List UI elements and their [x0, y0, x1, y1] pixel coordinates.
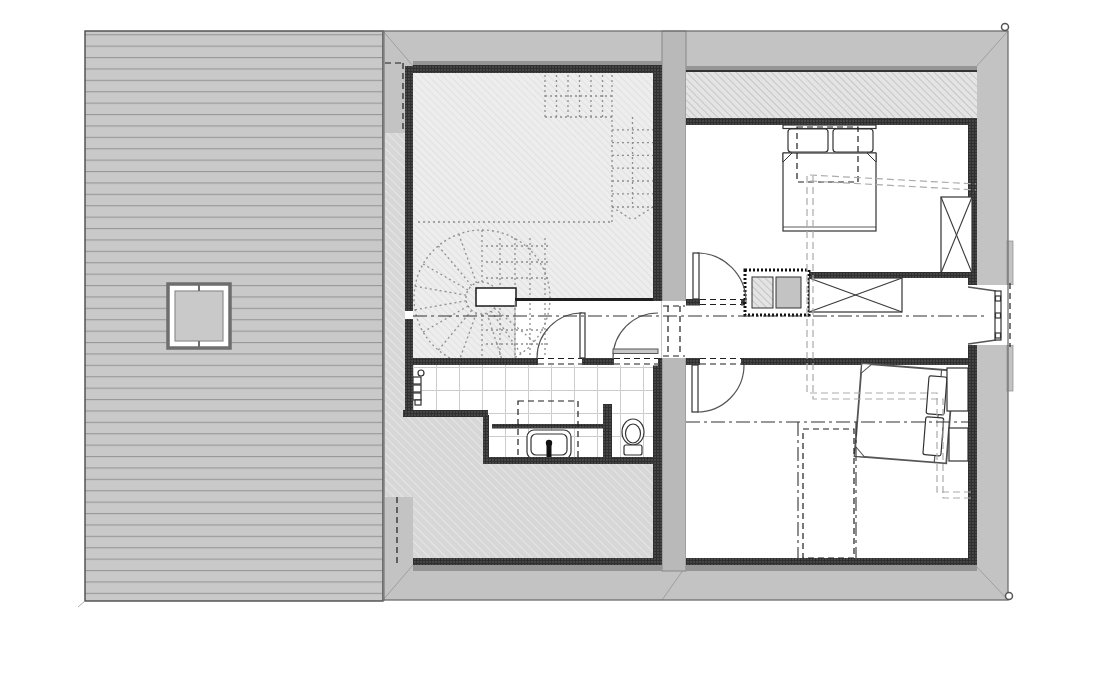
- dormer-window: [968, 283, 1013, 347]
- terrace-skylight: [168, 283, 230, 349]
- hall-south-wall: [745, 358, 968, 365]
- flue-hatched: [752, 277, 773, 308]
- corridor-north-wall: [515, 298, 653, 301]
- wall-bath-south: [483, 457, 660, 464]
- underroof-space-left: [413, 417, 485, 558]
- vanity-counter-edge: [492, 424, 606, 429]
- terrace-corner-tick: [78, 601, 85, 607]
- chimney: [745, 270, 809, 315]
- skylight-glass: [175, 291, 223, 341]
- door-leaf: [580, 313, 585, 358]
- door-leaf: [692, 365, 698, 412]
- door-leaf: [693, 253, 699, 299]
- double-bed-rotated: [855, 363, 954, 463]
- wall-north: [413, 65, 662, 73]
- wall-west: [405, 66, 413, 412]
- nightstand: [947, 368, 968, 411]
- terrace-decking: [85, 31, 383, 601]
- party-wall-opening: [662, 301, 686, 358]
- wall-east-upper: [653, 66, 662, 301]
- party-wall: [662, 31, 686, 571]
- spiral-stair-landing: [476, 288, 516, 306]
- floor-plan-drawing: [0, 0, 1100, 700]
- roof-terrace: [78, 31, 383, 607]
- wall-east-lower: [968, 345, 977, 565]
- nightstand: [949, 428, 968, 461]
- roof-band-bottom: [383, 571, 1008, 600]
- sink: [527, 430, 571, 459]
- pillow: [833, 129, 873, 152]
- corner-marker-icon: [1006, 593, 1013, 600]
- toilet: [622, 419, 644, 455]
- knee-wall-band: [686, 72, 977, 118]
- wall-south-inner: [686, 558, 968, 565]
- pillow: [788, 129, 828, 152]
- floor-plan: [0, 0, 1100, 700]
- wardrobe-hall: [809, 278, 902, 312]
- wardrobe-north: [941, 197, 972, 273]
- door-leaf: [613, 349, 658, 354]
- wall-east-lower: [653, 358, 662, 566]
- wall-south: [413, 558, 662, 566]
- underroof-space-bottom: [485, 464, 660, 558]
- wall-bath-step: [403, 410, 488, 417]
- wall-north-inner: [686, 118, 977, 125]
- bedroom-house: [663, 66, 1013, 571]
- corner-marker-icon: [1002, 24, 1009, 31]
- wc-partition-stub: [603, 404, 612, 459]
- flue-gray: [776, 277, 801, 308]
